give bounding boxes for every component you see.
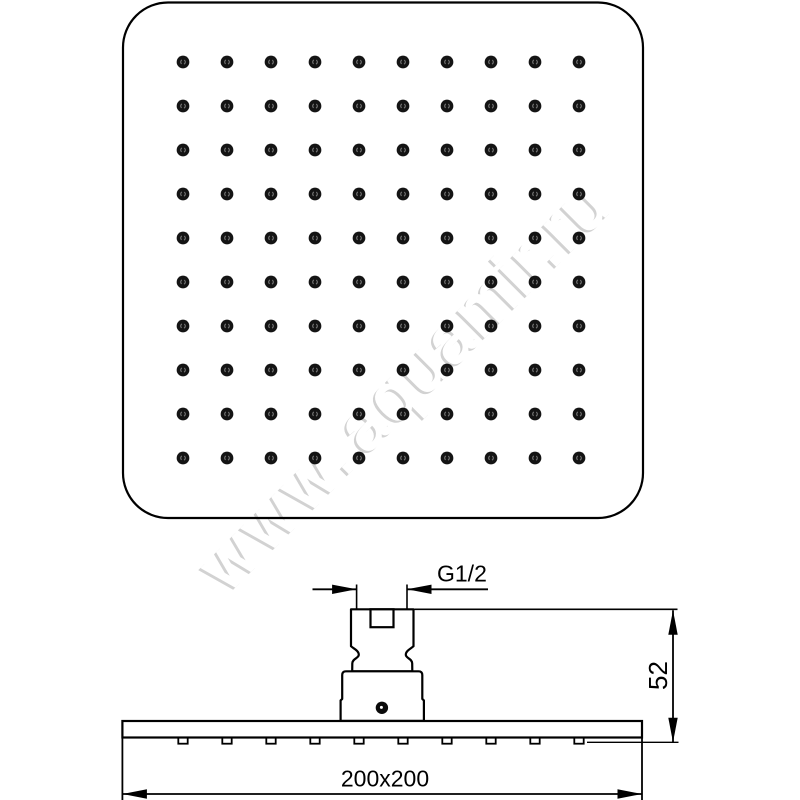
svg-text:G1/2: G1/2 <box>437 561 487 587</box>
svg-text:www.: www. <box>184 415 373 604</box>
svg-text:200x200: 200x200 <box>341 766 429 792</box>
svg-text:52: 52 <box>643 661 673 690</box>
svg-text:aquamir.ru: aquamir.ru <box>323 164 625 466</box>
